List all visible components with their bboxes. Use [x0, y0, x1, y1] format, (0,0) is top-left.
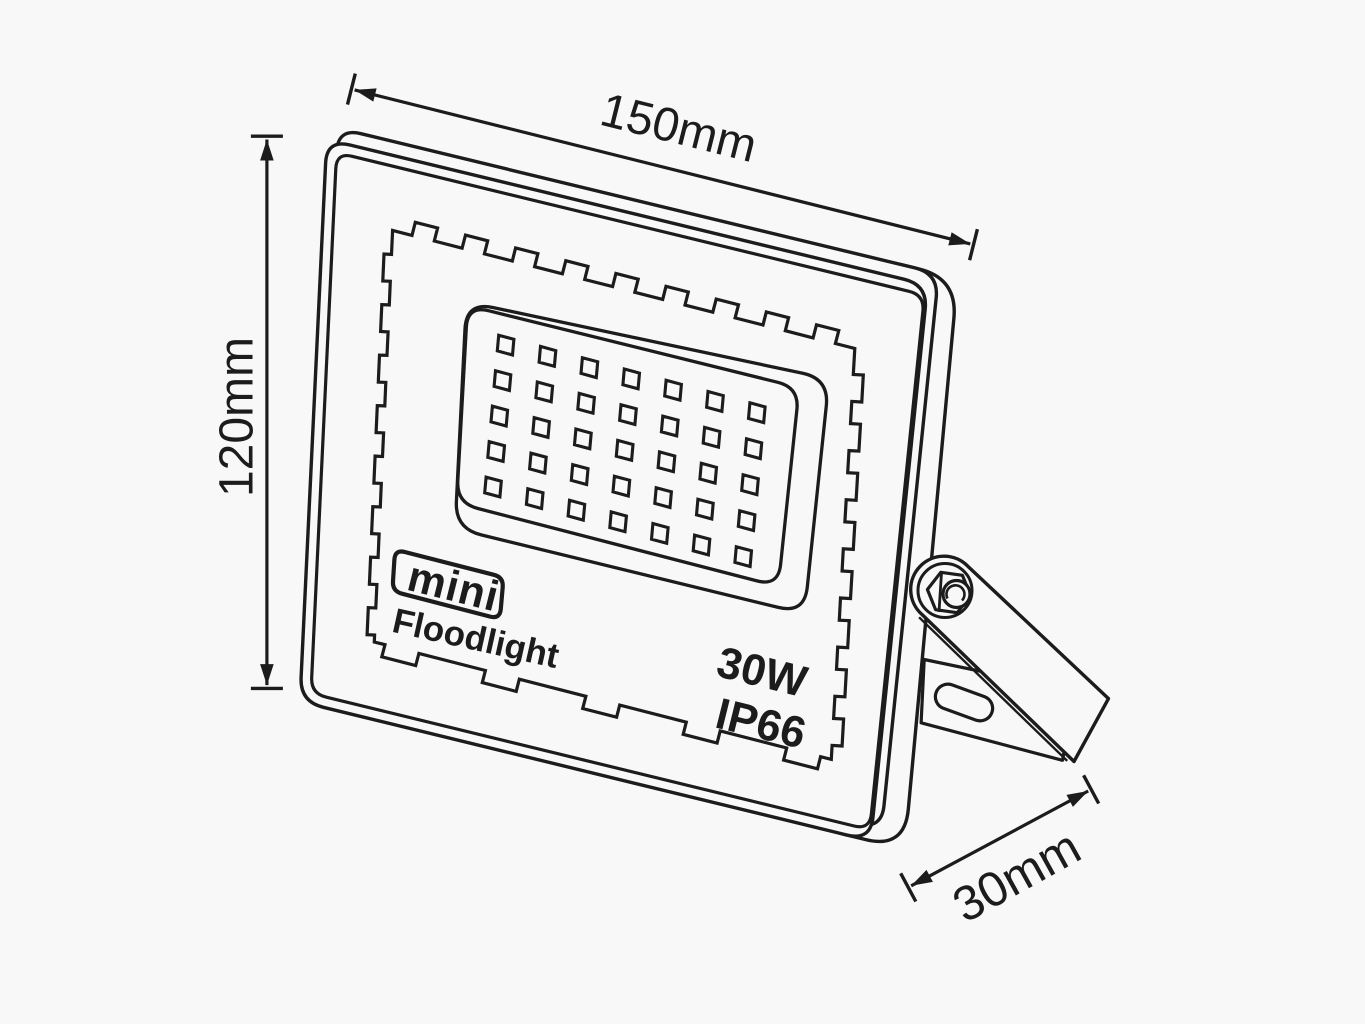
- svg-text:120mm: 120mm: [211, 337, 264, 497]
